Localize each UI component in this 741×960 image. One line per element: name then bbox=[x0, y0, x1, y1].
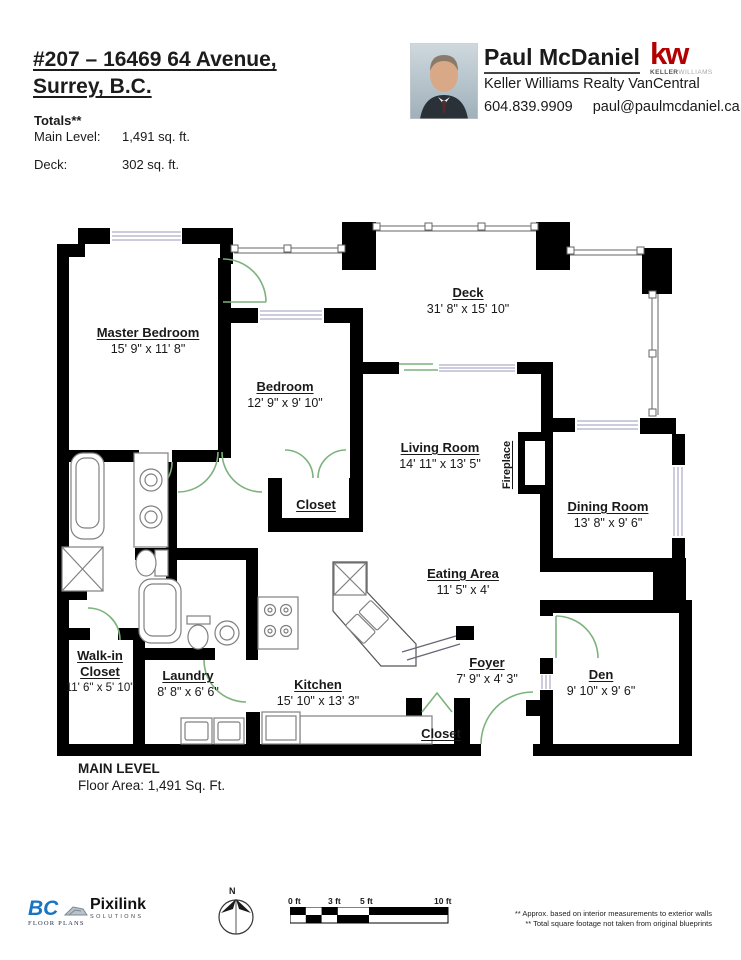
kw-logo-subtext: KELLERWILLIAMS bbox=[650, 69, 713, 76]
room-label-bedroom: Bedroom 12' 9" x 9' 10" bbox=[225, 379, 345, 411]
agent-name: Paul McDaniel bbox=[484, 44, 640, 74]
scale-label-10: 10 ft bbox=[434, 896, 451, 906]
agent-email: paul@paulmcdaniel.ca bbox=[593, 99, 740, 115]
kw-logo: kw bbox=[650, 40, 687, 68]
room-label-closet-bedroom: Closet bbox=[281, 497, 351, 513]
agent-photo bbox=[410, 43, 478, 119]
disclaimers: ** Approx. based on interior measurement… bbox=[400, 909, 712, 929]
room-label-deck: Deck 31' 8" x 15' 10" bbox=[398, 285, 538, 317]
pixilink-name: Pixilink bbox=[90, 897, 146, 913]
totals-value: 302 sq. ft. bbox=[122, 157, 179, 172]
room-label-laundry: Laundry 8' 8" x 6' 6" bbox=[138, 668, 238, 700]
address-line-2: Surrey, B.C. bbox=[33, 73, 277, 100]
scale-label-0: 0 ft bbox=[288, 896, 301, 906]
agent-brokerage: Keller Williams Realty VanCentral bbox=[484, 76, 700, 92]
room-label-closet-foyer: Closet bbox=[406, 726, 476, 742]
totals-label: Main Level: bbox=[34, 129, 122, 144]
totals-value: 1,491 sq. ft. bbox=[122, 129, 190, 144]
scale-label-5: 5 ft bbox=[360, 896, 373, 906]
room-label-walk-in-closet: Walk-in Closet 11' 6" x 5' 10" bbox=[58, 648, 142, 696]
fireplace-inner bbox=[525, 441, 545, 485]
totals-label: Deck: bbox=[34, 157, 122, 172]
agent-phone: 604.839.9909 bbox=[484, 99, 573, 115]
kw-williams: WILLIAMS bbox=[678, 69, 712, 76]
compass-icon bbox=[216, 896, 256, 936]
room-label-foyer: Foyer 7' 9" x 4' 3" bbox=[427, 655, 547, 687]
pixilink-logo: Pixilink SOLUTIONS bbox=[90, 897, 146, 920]
floor-plan-drawing bbox=[0, 0, 741, 960]
level-title: MAIN LEVEL bbox=[78, 761, 160, 776]
address-line-1: #207 – 16469 64 Avenue, bbox=[33, 46, 277, 73]
floor-plan-page: #207 – 16469 64 Avenue, Surrey, B.C. Tot… bbox=[0, 0, 741, 960]
page-title: #207 – 16469 64 Avenue, Surrey, B.C. bbox=[33, 46, 277, 100]
room-label-master-bedroom: Master Bedroom 15' 9" x 11' 8" bbox=[78, 325, 218, 357]
room-label-eating-area: Eating Area 11' 5" x 4' bbox=[393, 566, 533, 598]
bc-logo-text: BC bbox=[28, 897, 58, 920]
room-label-den: Den 9' 10" x 9' 6" bbox=[541, 667, 661, 699]
agent-contact: 604.839.9909 paul@paulmcdaniel.ca bbox=[484, 99, 740, 115]
level-area: Floor Area: 1,491 Sq. Ft. bbox=[78, 778, 225, 793]
bc-logo-graphic bbox=[63, 903, 89, 919]
totals-row-main-level: Main Level: 1,491 sq. ft. bbox=[34, 129, 190, 144]
room-label-living-room: Living Room 14' 11" x 13' 5" bbox=[370, 440, 510, 472]
room-label-fireplace: Fireplace bbox=[499, 433, 515, 497]
kw-keller: KELLER bbox=[650, 69, 678, 76]
room-label-kitchen: Kitchen 15' 10" x 13' 3" bbox=[258, 677, 378, 709]
bc-floor-plans-logo: BC FLOOR PLANS bbox=[28, 899, 94, 927]
room-label-dining-room: Dining Room 13' 8" x 9' 6" bbox=[538, 499, 678, 531]
totals-row-deck: Deck: 302 sq. ft. bbox=[34, 157, 179, 172]
pixilink-subtext: SOLUTIONS bbox=[90, 914, 146, 920]
totals-title: Totals** bbox=[34, 113, 81, 128]
scale-label-3: 3 ft bbox=[328, 896, 341, 906]
compass-north-label: N bbox=[229, 886, 236, 896]
disclaimer-line-2: ** Total square footage not taken from o… bbox=[400, 919, 712, 929]
bc-logo-subtext: FLOOR PLANS bbox=[28, 920, 94, 927]
disclaimer-line-1: ** Approx. based on interior measurement… bbox=[400, 909, 712, 919]
